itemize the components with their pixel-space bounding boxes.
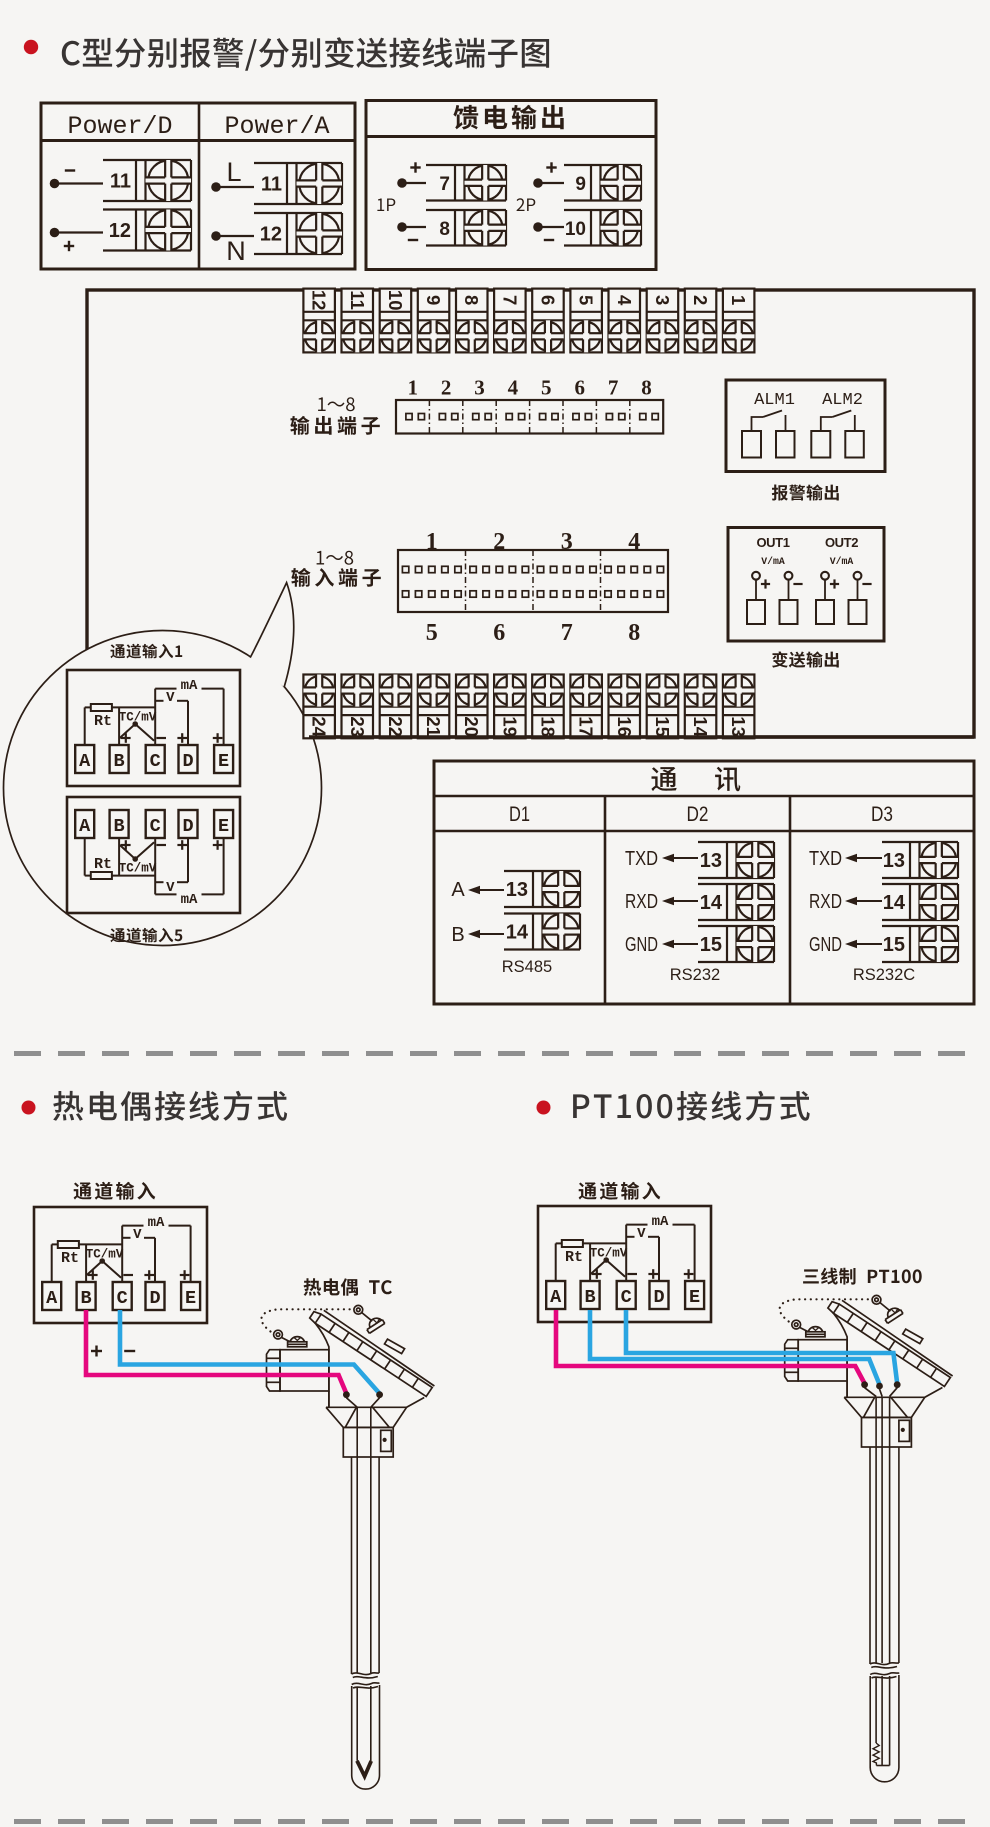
svg-text:B: B [585, 1287, 596, 1308]
svg-text:14: 14 [883, 892, 906, 914]
svg-text:15: 15 [700, 934, 722, 956]
svg-text:Rt: Rt [94, 856, 112, 873]
svg-text:A: A [451, 879, 465, 901]
svg-text:V: V [166, 690, 175, 706]
svg-text:B: B [114, 751, 125, 772]
svg-text:A: A [79, 816, 91, 837]
svg-text:2: 2 [690, 295, 711, 305]
svg-text:TC/mV: TC/mV [590, 1247, 628, 1261]
svg-text:8: 8 [628, 620, 640, 646]
svg-text:24: 24 [309, 716, 330, 737]
svg-text:7: 7 [499, 295, 520, 305]
svg-text:RXD: RXD [809, 891, 842, 913]
svg-text:TC/mV: TC/mV [119, 862, 157, 876]
svg-text:12: 12 [260, 224, 282, 246]
svg-text:21: 21 [423, 716, 444, 737]
svg-text:A: A [79, 751, 91, 772]
svg-text:TXD: TXD [625, 848, 658, 870]
svg-text:E: E [185, 1288, 196, 1309]
svg-text:E: E [218, 816, 229, 837]
svg-text:Rt: Rt [94, 713, 112, 730]
svg-text:C: C [117, 1288, 128, 1309]
svg-text:D: D [182, 751, 193, 772]
svg-text:3: 3 [474, 376, 485, 400]
svg-text:7: 7 [439, 174, 450, 195]
svg-text:9: 9 [423, 295, 444, 305]
svg-text:18: 18 [538, 716, 559, 737]
svg-text:Rt: Rt [61, 1250, 79, 1267]
svg-text:Rt: Rt [565, 1249, 583, 1266]
svg-text:D: D [182, 816, 193, 837]
svg-text:A: A [550, 1287, 562, 1308]
svg-text:D2: D2 [687, 803, 709, 826]
svg-text:11: 11 [261, 174, 282, 196]
svg-text:GND: GND [625, 934, 658, 956]
svg-text:9: 9 [575, 174, 586, 195]
svg-text:6: 6 [574, 376, 585, 400]
svg-text:mA: mA [652, 1214, 669, 1230]
svg-text:2: 2 [441, 376, 452, 400]
svg-text:20: 20 [461, 716, 482, 737]
svg-text:TC/mV: TC/mV [86, 1248, 124, 1262]
svg-text:11: 11 [110, 171, 131, 193]
svg-text:6: 6 [493, 620, 505, 646]
svg-text:17: 17 [576, 716, 597, 737]
svg-text:11: 11 [347, 290, 368, 310]
svg-text:14: 14 [700, 892, 723, 914]
svg-text:12: 12 [309, 290, 330, 311]
svg-text:ALM2: ALM2 [822, 391, 863, 410]
svg-text:5: 5 [541, 376, 552, 400]
svg-text:RXD: RXD [625, 891, 658, 913]
svg-text:4: 4 [614, 295, 635, 306]
svg-text:10: 10 [565, 219, 586, 240]
svg-text:GND: GND [809, 934, 842, 956]
svg-text:D: D [653, 1287, 664, 1308]
svg-text:5: 5 [426, 620, 438, 646]
svg-text:16: 16 [614, 716, 635, 737]
svg-text:1: 1 [407, 376, 418, 400]
svg-text:23: 23 [347, 716, 368, 737]
svg-text:19: 19 [499, 716, 520, 737]
svg-text:RS485: RS485 [502, 958, 552, 976]
svg-text:mA: mA [181, 678, 198, 694]
svg-text:V: V [637, 1226, 646, 1242]
svg-text:V: V [166, 880, 175, 896]
svg-text:B: B [114, 816, 125, 837]
svg-text:N: N [226, 236, 246, 266]
svg-text:D: D [149, 1288, 160, 1309]
svg-text:B: B [451, 924, 464, 946]
svg-text:ALM1: ALM1 [754, 391, 795, 410]
svg-text:L: L [226, 157, 241, 187]
svg-text:V/mA: V/mA [761, 556, 785, 567]
svg-text:RS232: RS232 [670, 966, 720, 984]
svg-text:8: 8 [641, 376, 652, 400]
svg-text:13: 13 [883, 850, 905, 872]
svg-text:V: V [133, 1227, 142, 1243]
svg-text:15: 15 [883, 934, 905, 956]
svg-text:1: 1 [728, 295, 749, 305]
svg-text:TXD: TXD [809, 848, 842, 870]
svg-text:B: B [81, 1288, 92, 1309]
svg-text:V/mA: V/mA [830, 556, 854, 567]
svg-text:13: 13 [700, 850, 722, 872]
svg-text:14: 14 [690, 716, 711, 737]
svg-text:C: C [150, 751, 161, 772]
svg-text:mA: mA [148, 1215, 165, 1231]
svg-text:D1: D1 [509, 803, 530, 826]
svg-text:22: 22 [385, 716, 406, 737]
svg-text:C: C [621, 1287, 632, 1308]
svg-text:15: 15 [652, 716, 673, 737]
svg-text:C: C [150, 816, 161, 837]
svg-text:TC/mV: TC/mV [119, 711, 157, 725]
svg-text:RS232C: RS232C [853, 966, 915, 984]
svg-text:6: 6 [538, 295, 559, 305]
svg-text:7: 7 [608, 376, 619, 400]
svg-text:E: E [689, 1287, 700, 1308]
svg-text:13: 13 [506, 879, 528, 901]
svg-text:13: 13 [728, 716, 749, 737]
svg-text:14: 14 [506, 922, 529, 944]
svg-text:OUT1: OUT1 [756, 535, 789, 550]
svg-text:A: A [46, 1288, 58, 1309]
svg-text:mA: mA [181, 892, 198, 908]
svg-text:Power/A: Power/A [224, 112, 329, 141]
svg-text:Power/D: Power/D [67, 112, 172, 141]
svg-text:12: 12 [109, 220, 131, 242]
svg-text:10: 10 [385, 290, 406, 311]
svg-text:7: 7 [561, 620, 573, 646]
svg-text:8: 8 [461, 295, 482, 305]
svg-text:OUT2: OUT2 [825, 535, 858, 550]
svg-text:3: 3 [652, 295, 673, 305]
svg-text:4: 4 [508, 376, 519, 400]
svg-text:8: 8 [439, 219, 450, 240]
svg-text:5: 5 [576, 295, 597, 305]
svg-text:D3: D3 [871, 803, 893, 826]
svg-text:E: E [218, 751, 229, 772]
